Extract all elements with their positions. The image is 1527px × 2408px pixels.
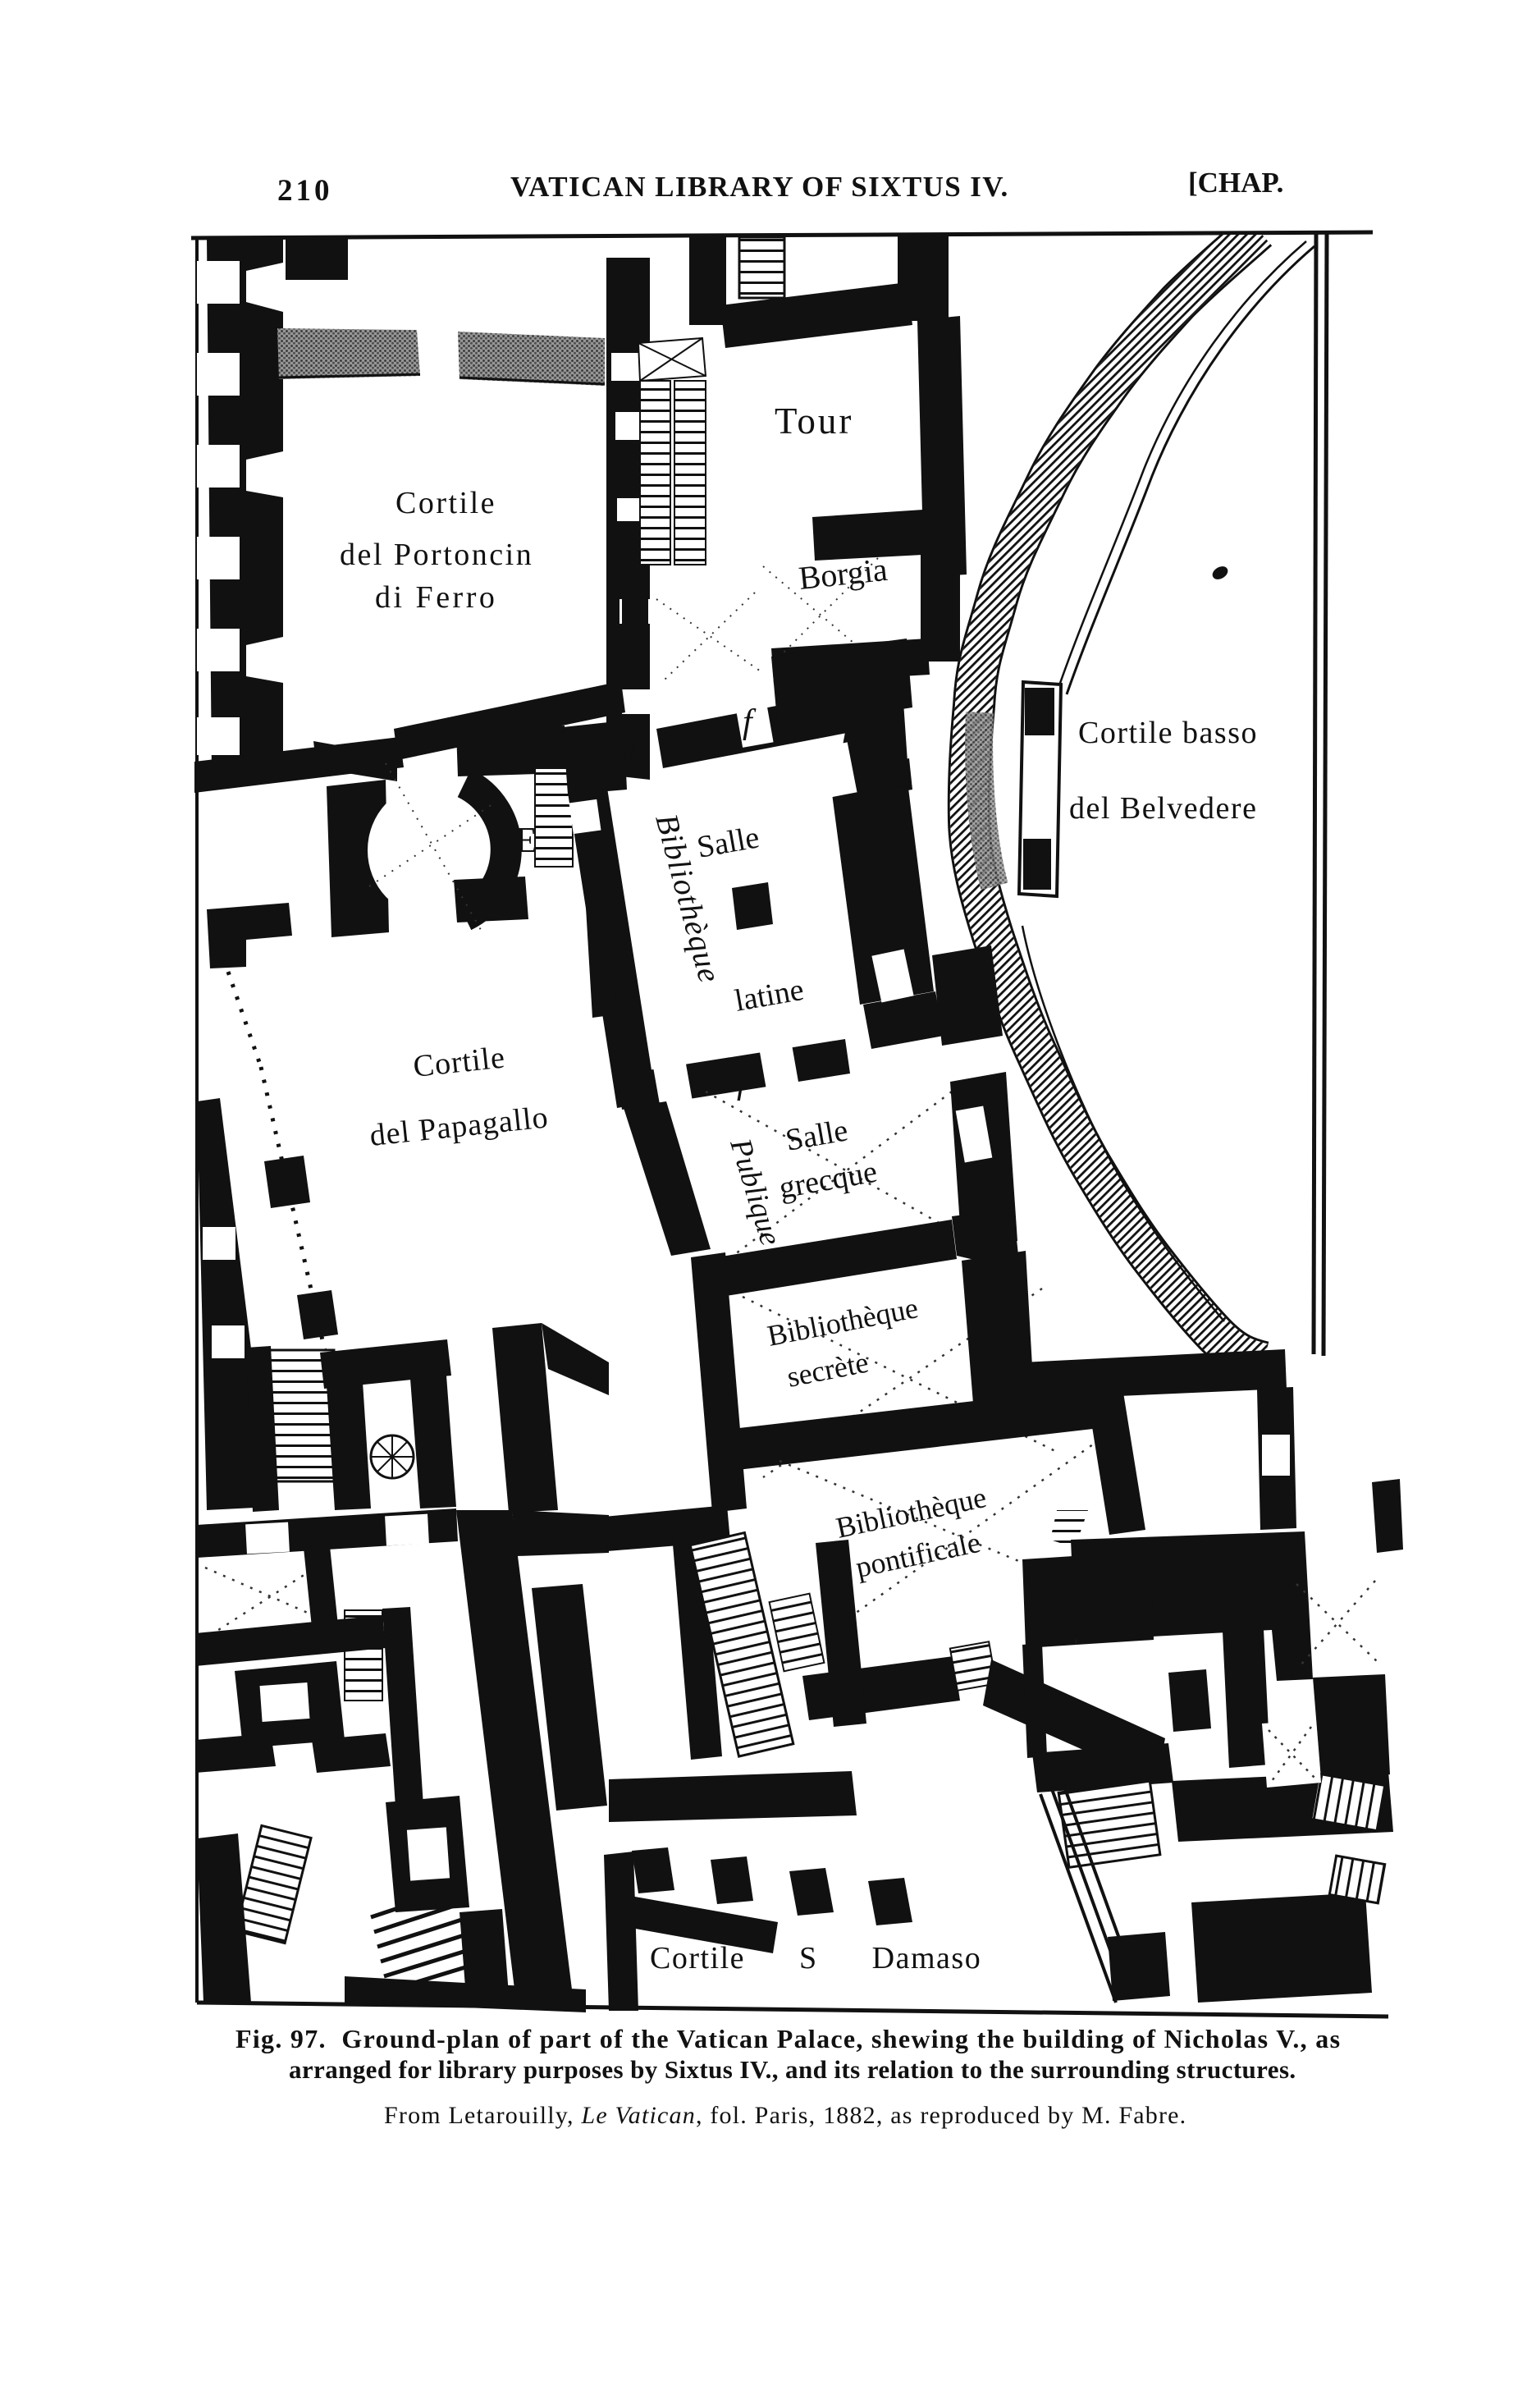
svg-text:Publique: Publique bbox=[723, 1134, 788, 1250]
svg-text:Borgia: Borgia bbox=[797, 551, 889, 597]
svg-text:del Portoncin: del Portoncin bbox=[340, 538, 533, 572]
svg-text:del Belvedere: del Belvedere bbox=[1069, 791, 1257, 826]
svg-text:Cortile: Cortile bbox=[395, 486, 496, 520]
svg-text:Bibliothèque: Bibliothèque bbox=[765, 1291, 921, 1353]
svg-text:Cortile S Damaso: Cortile S Damaso bbox=[650, 1941, 981, 1975]
svg-text:grecque: grecque bbox=[776, 1155, 880, 1206]
svg-text:latine: latine bbox=[732, 973, 806, 1019]
svg-text:Tour: Tour bbox=[775, 401, 853, 442]
svg-text:del Papagallo: del Papagallo bbox=[368, 1100, 551, 1153]
svg-text:Cortile basso: Cortile basso bbox=[1078, 716, 1258, 750]
svg-text:Cortile: Cortile bbox=[412, 1040, 507, 1084]
svg-text:di Ferro: di Ferro bbox=[375, 580, 497, 615]
svg-text:Salle: Salle bbox=[694, 820, 761, 865]
svg-text:Salle: Salle bbox=[783, 1113, 850, 1158]
svg-text:E: E bbox=[515, 820, 537, 860]
